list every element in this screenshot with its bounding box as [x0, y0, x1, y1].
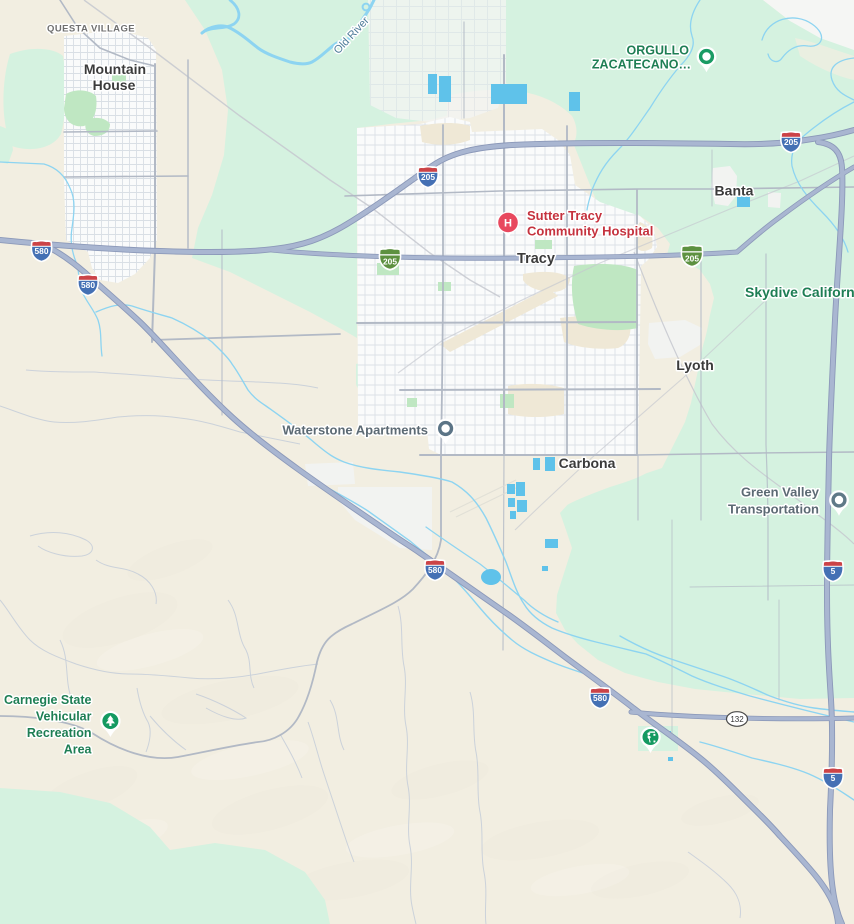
svg-text:Carnegie State: Carnegie State [4, 693, 92, 707]
svg-text:205: 205 [685, 254, 699, 264]
svg-text:205: 205 [421, 172, 435, 182]
svg-text:Transportation: Transportation [728, 502, 819, 517]
svg-text:Green Valley: Green Valley [741, 485, 820, 500]
svg-text:Waterstone Apartments: Waterstone Apartments [282, 423, 428, 438]
svg-text:5: 5 [831, 773, 836, 783]
svg-text:ZACATECANO…: ZACATECANO… [592, 58, 691, 72]
svg-text:580: 580 [35, 246, 49, 256]
svg-text:Vehicular: Vehicular [36, 710, 92, 724]
svg-text:Sutter Tracy: Sutter Tracy [527, 208, 603, 223]
svg-text:Tracy: Tracy [517, 251, 555, 267]
svg-text:Banta: Banta [715, 183, 754, 199]
svg-text:205: 205 [383, 257, 397, 267]
svg-text:Skydive California: Skydive California [745, 284, 854, 300]
svg-text:132: 132 [730, 715, 744, 724]
svg-text:580: 580 [428, 565, 442, 575]
svg-text:580: 580 [81, 280, 95, 290]
svg-text:QUESTA VILLAGE: QUESTA VILLAGE [47, 24, 135, 35]
svg-text:Area: Area [64, 743, 93, 757]
svg-text:Mountain: Mountain [84, 61, 146, 77]
svg-text:Lyoth: Lyoth [676, 357, 714, 373]
svg-text:Recreation: Recreation [27, 726, 92, 740]
svg-text:H: H [504, 218, 512, 230]
svg-text:580: 580 [593, 693, 607, 703]
svg-text:205: 205 [784, 137, 798, 147]
svg-text:ORGULLO: ORGULLO [627, 44, 690, 58]
svg-text:House: House [93, 77, 136, 93]
svg-text:Community Hospital: Community Hospital [527, 224, 653, 239]
svg-text:5: 5 [831, 566, 836, 576]
svg-text:Carbona: Carbona [559, 455, 616, 471]
